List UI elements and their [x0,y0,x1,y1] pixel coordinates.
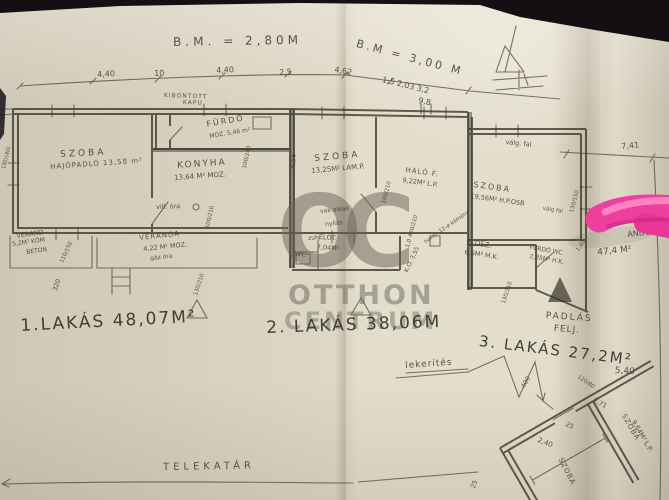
dim-440b: 4,40 [216,66,234,75]
scale-note-left: B.M. = 2,80M [173,34,302,48]
room-elot-detail: 7,04M² [317,244,340,252]
note-electric-meter: vill. óra [156,203,180,210]
photo-of-floor-plan: OC OTTHON CENTRUM B.M. = 2,80M B.M = 3,0… [0,0,669,500]
dim-10: 10 [154,69,165,78]
room-zuh: zuh. [308,235,321,242]
dim-540: 5,40 [615,367,635,377]
boundary-label: TELEKATÁR [163,461,255,473]
gate-note-line2: KAPU [183,100,203,107]
room-wc: WC [295,251,306,258]
dim-25: 2,5 [279,68,292,77]
dim-741: 7,41 [621,141,639,151]
attic-line2: FELJ. [553,325,580,336]
dim-440a: 4,40 [97,70,115,79]
